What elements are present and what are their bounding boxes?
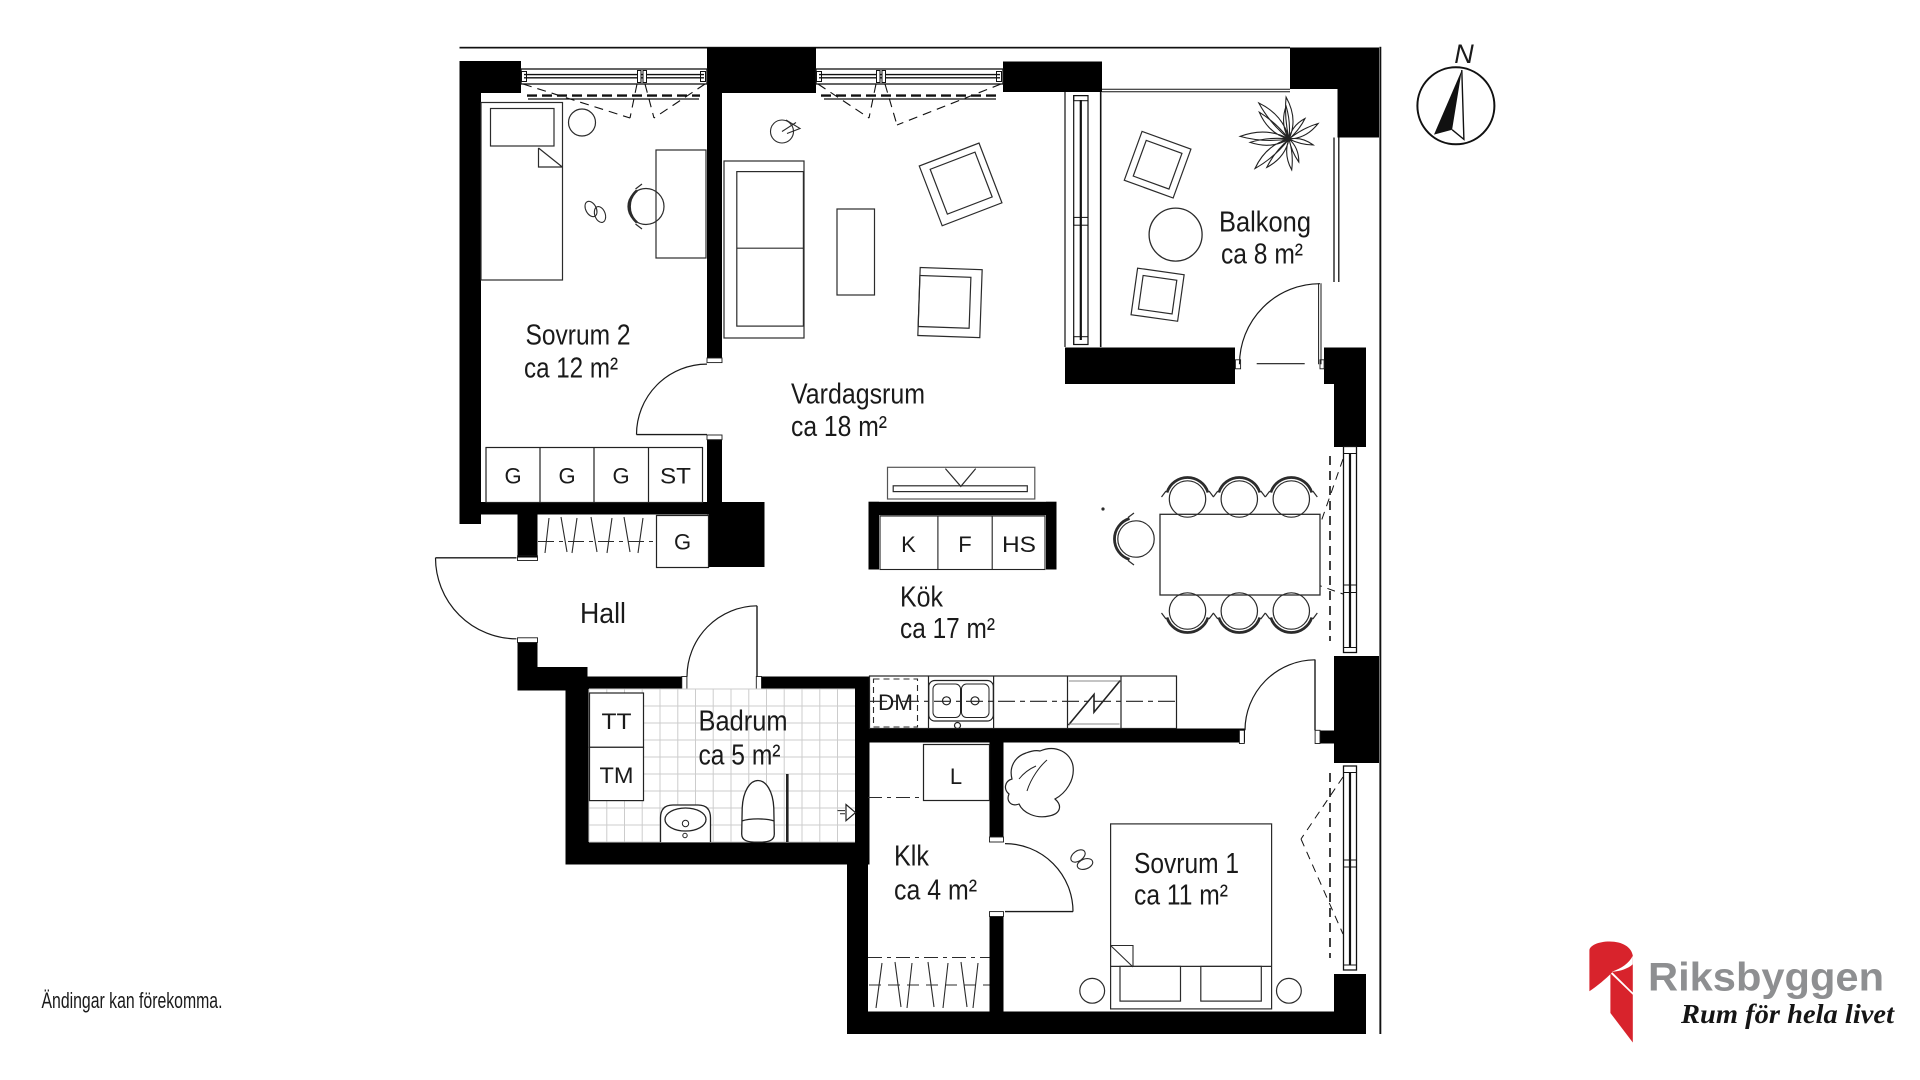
svg-text:N: N bbox=[1454, 39, 1474, 69]
svg-text:G: G bbox=[558, 464, 575, 489]
svg-text:L: L bbox=[950, 764, 962, 789]
svg-text:G: G bbox=[674, 530, 691, 555]
svg-text:Klk: Klk bbox=[894, 840, 929, 872]
svg-text:F: F bbox=[958, 532, 971, 557]
svg-text:Sovrum 1: Sovrum 1 bbox=[1134, 848, 1239, 880]
svg-text:G: G bbox=[504, 464, 521, 489]
svg-text:Riksbyggen: Riksbyggen bbox=[1648, 956, 1884, 1000]
svg-text:Kök: Kök bbox=[900, 582, 943, 614]
svg-text:ca 5 m²: ca 5 m² bbox=[699, 740, 781, 772]
svg-text:Hall: Hall bbox=[580, 598, 626, 630]
svg-text:Ändingar kan förekomma.: Ändingar kan förekomma. bbox=[42, 988, 223, 1013]
svg-text:ca 4 m²: ca 4 m² bbox=[894, 875, 977, 907]
svg-text:Balkong: Balkong bbox=[1219, 207, 1311, 239]
svg-text:ST: ST bbox=[660, 464, 691, 489]
svg-text:ca 17 m²: ca 17 m² bbox=[900, 613, 995, 645]
svg-text:K: K bbox=[901, 532, 916, 557]
svg-text:Rum för hela livet: Rum för hela livet bbox=[1680, 999, 1896, 1029]
svg-text:TT: TT bbox=[602, 709, 632, 734]
svg-text:ca 11 m²: ca 11 m² bbox=[1134, 880, 1228, 912]
svg-text:TM: TM bbox=[600, 763, 634, 788]
svg-text:Sovrum 2: Sovrum 2 bbox=[526, 320, 631, 352]
svg-text:G: G bbox=[612, 464, 629, 489]
svg-text:ca 12 m²: ca 12 m² bbox=[524, 353, 618, 385]
svg-text:Badrum: Badrum bbox=[699, 706, 788, 738]
svg-text:DM: DM bbox=[878, 690, 913, 715]
svg-text:Vardagsrum: Vardagsrum bbox=[791, 379, 925, 411]
svg-text:ca 8 m²: ca 8 m² bbox=[1221, 239, 1303, 271]
svg-text:ca 18 m²: ca 18 m² bbox=[791, 411, 887, 443]
svg-text:HS: HS bbox=[1002, 532, 1036, 557]
